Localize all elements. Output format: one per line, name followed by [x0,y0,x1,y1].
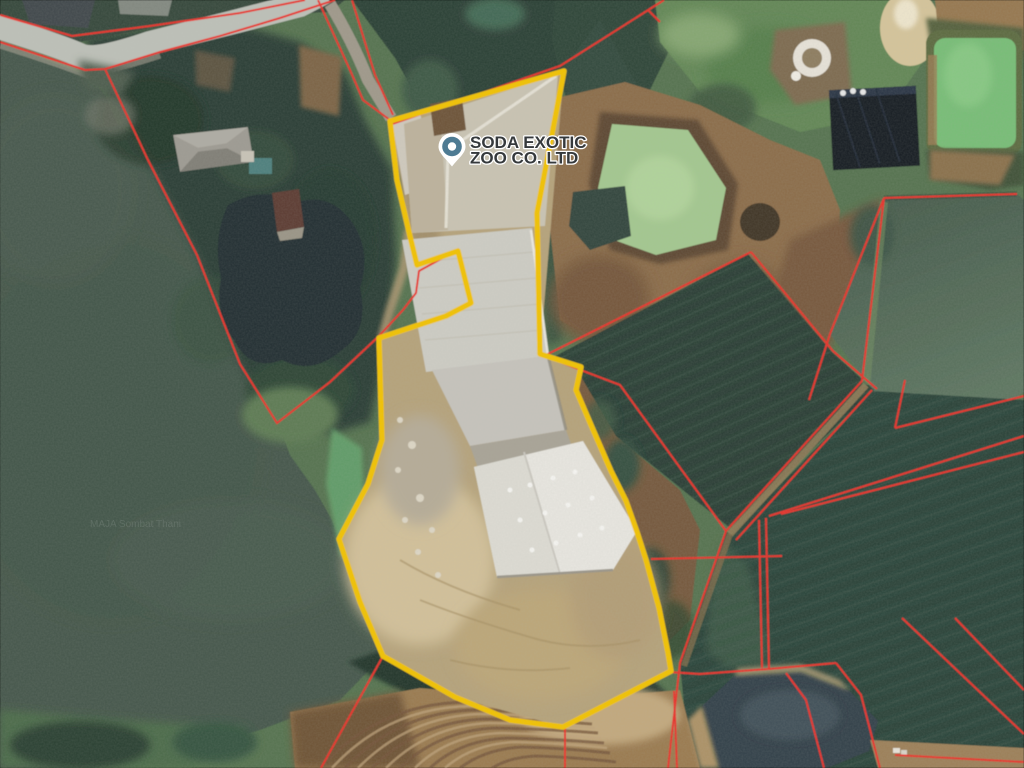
svg-text:ZOO CO. LTD: ZOO CO. LTD [470,149,578,168]
svg-text:MAJA Sombat Thani: MAJA Sombat Thani [90,519,181,530]
